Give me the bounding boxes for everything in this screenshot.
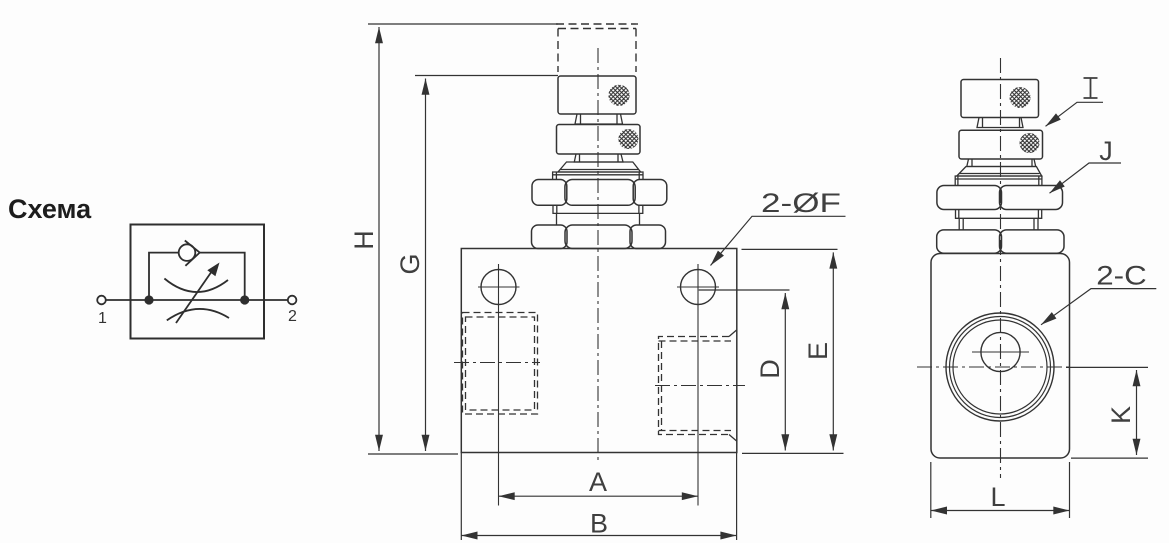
svg-text:2-C: 2-C bbox=[1096, 261, 1146, 291]
svg-text:J: J bbox=[1099, 136, 1113, 166]
svg-text:2-ØF: 2-ØF bbox=[761, 188, 841, 218]
svg-text:L: L bbox=[990, 482, 1005, 512]
svg-text:K: K bbox=[1106, 406, 1136, 424]
svg-text:H: H bbox=[349, 230, 379, 250]
svg-text:E: E bbox=[803, 342, 833, 360]
svg-text:B: B bbox=[590, 509, 608, 539]
svg-text:Схема: Схема bbox=[8, 194, 92, 224]
svg-text:G: G bbox=[395, 253, 425, 274]
svg-text:A: A bbox=[589, 467, 607, 497]
svg-text:2: 2 bbox=[288, 308, 297, 325]
svg-text:1: 1 bbox=[98, 310, 107, 327]
svg-text:D: D bbox=[755, 359, 785, 379]
